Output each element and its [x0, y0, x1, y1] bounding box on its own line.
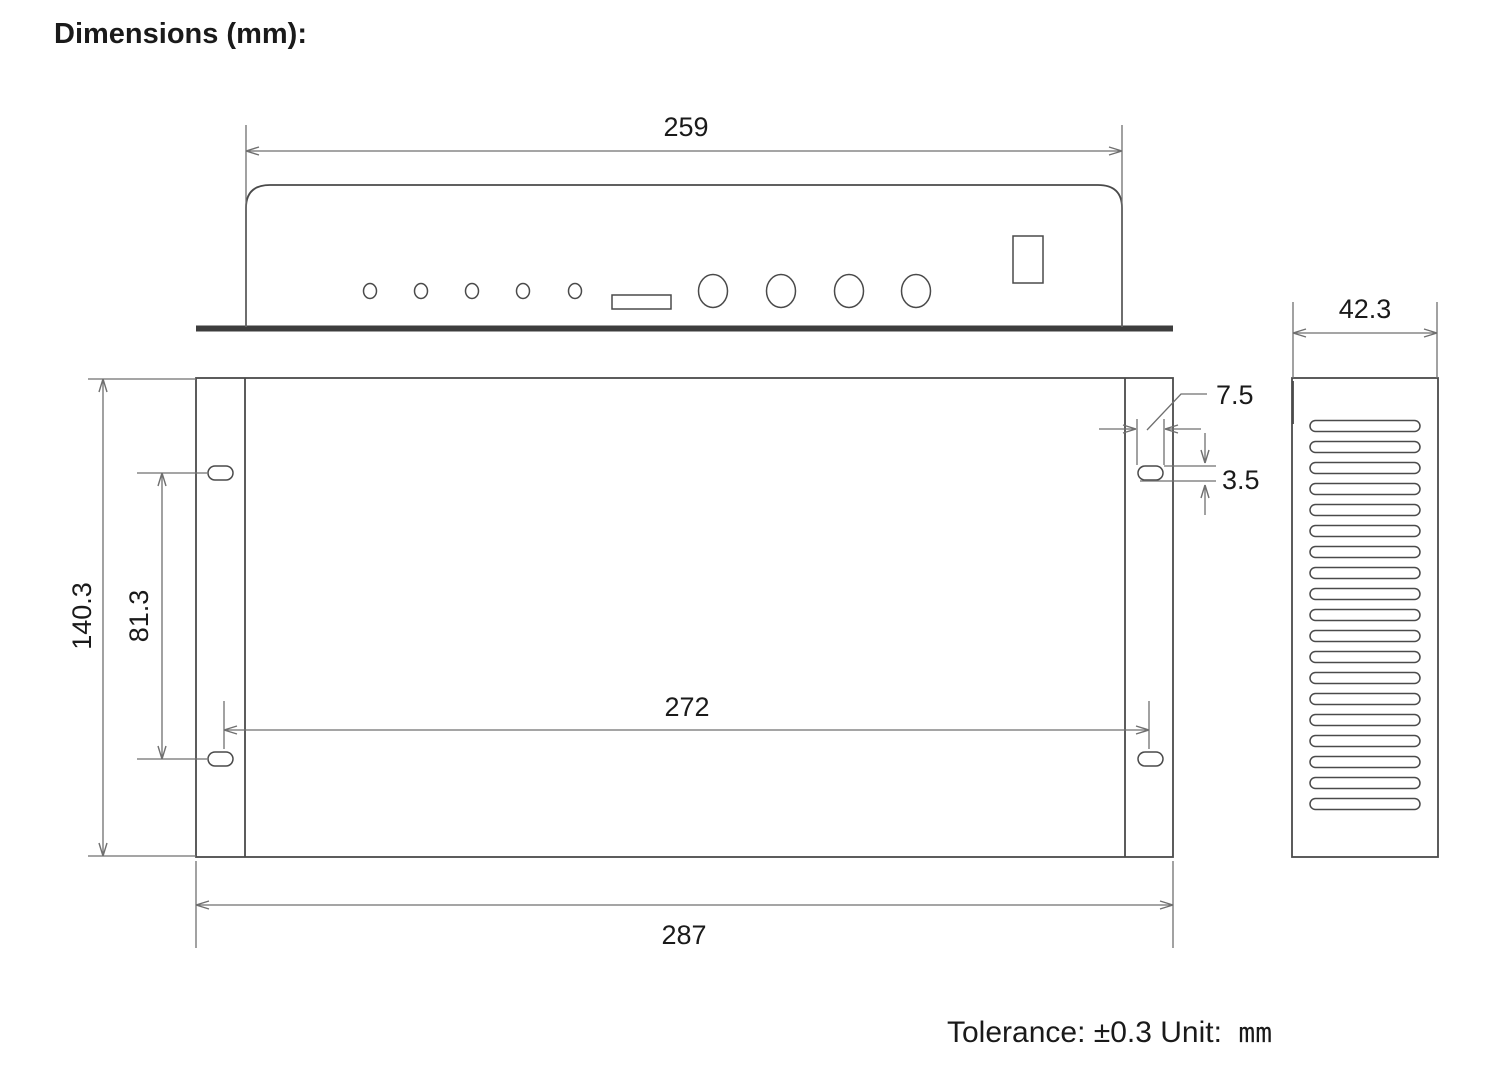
chassis-outline [196, 378, 1173, 857]
front-base-plate [196, 326, 1173, 332]
dim-hole-pitch-horizontal: 272 [224, 692, 1149, 749]
dim-front-width: 259 [246, 112, 1122, 327]
dim-mount-slot-height: 3.5 [1140, 433, 1260, 515]
dim-label-42-3: 42.3 [1339, 294, 1392, 324]
dimension-drawing: Dimensions (mm): 259 140.3 81.3 [0, 0, 1495, 1082]
vent-slot [1310, 421, 1420, 432]
connector-hole [835, 275, 864, 308]
vent-slot [1310, 631, 1420, 642]
dim-hole-pitch-vertical: 81.3 [124, 473, 207, 759]
dim-label-272: 272 [664, 692, 709, 722]
mount-slot-bottom-right [1138, 752, 1163, 766]
vent-slot [1310, 652, 1420, 663]
vent-slot [1310, 715, 1420, 726]
dim-label-81-3: 81.3 [124, 590, 154, 643]
mount-slot-top-left [208, 466, 233, 480]
power-switch-cutout [1013, 236, 1043, 283]
dim-depth: 42.3 [1293, 294, 1437, 378]
unit-text: mm [1238, 1016, 1272, 1049]
vent-slot [1310, 694, 1420, 705]
connector-hole [902, 275, 931, 308]
vent-slot [1310, 505, 1420, 516]
vent-slot [1310, 610, 1420, 621]
dim-label-287: 287 [661, 920, 706, 950]
side-view [1292, 378, 1438, 857]
vent-slot [1310, 463, 1420, 474]
vent-slot [1310, 589, 1420, 600]
dim-label-259: 259 [663, 112, 708, 142]
engineering-drawing-page: Dimensions (mm): 259 140.3 81.3 [0, 0, 1495, 1082]
led-hole [517, 284, 530, 299]
led-hole [364, 284, 377, 299]
vent-slot [1310, 799, 1420, 810]
vent-slot [1310, 757, 1420, 768]
dim-label-3-5: 3.5 [1222, 465, 1260, 495]
vent-slot [1310, 484, 1420, 495]
vent-slot [1310, 736, 1420, 747]
vent-slot-group [1310, 421, 1420, 810]
side-outline [1292, 378, 1438, 857]
mount-slot-top-right [1138, 466, 1163, 480]
vent-slot [1310, 526, 1420, 537]
vent-slot [1310, 547, 1420, 558]
connector-hole [699, 275, 728, 308]
led-hole [569, 284, 582, 299]
bottom-view [196, 378, 1173, 857]
mount-slot-bottom-left [208, 752, 233, 766]
connector-hole [767, 275, 796, 308]
vent-slot [1310, 442, 1420, 453]
vent-slot [1310, 778, 1420, 789]
dim-overall-width: 287 [196, 861, 1173, 950]
front-view [196, 185, 1173, 332]
front-slot-window [612, 295, 671, 309]
tolerance-text: Tolerance: ±0.3 Unit: [947, 1016, 1222, 1049]
page-title: Dimensions (mm): [54, 18, 307, 50]
connector-hole-group [699, 275, 931, 308]
vent-slot [1310, 568, 1420, 579]
led-hole-group [364, 284, 582, 299]
dim-label-140-3: 140.3 [67, 582, 97, 650]
led-hole [466, 284, 479, 299]
tolerance-note: Tolerance: ±0.3 Unit: mm [947, 1016, 1272, 1049]
dim-label-7-5: 7.5 [1216, 380, 1254, 410]
led-hole [415, 284, 428, 299]
leader-line [1147, 394, 1207, 430]
dim-mount-slot-width: 7.5 [1099, 380, 1254, 465]
vent-slot [1310, 673, 1420, 684]
front-panel-outline [246, 185, 1122, 329]
